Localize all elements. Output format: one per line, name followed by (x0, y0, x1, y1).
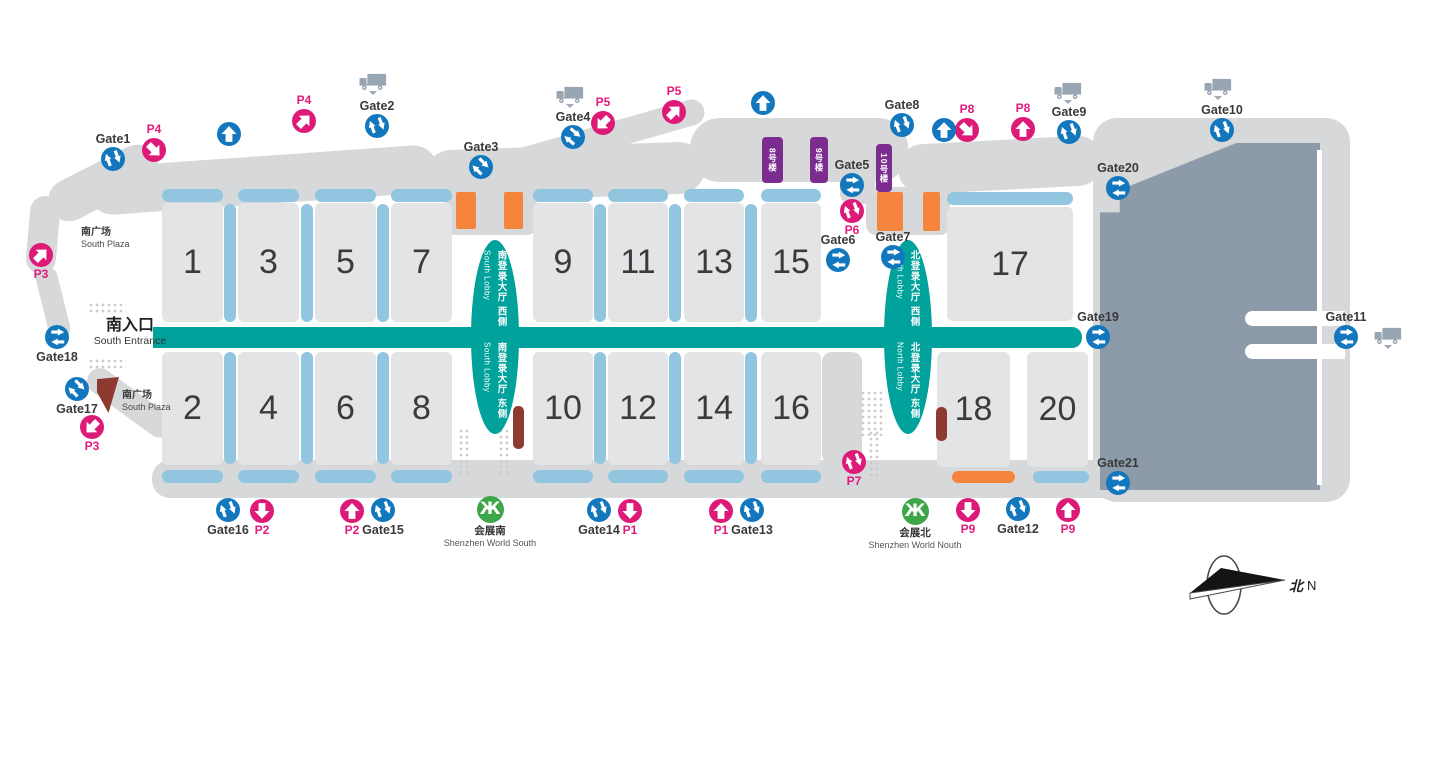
hall-number: 15 (761, 203, 821, 322)
gate-icon (1210, 118, 1234, 142)
truck-parking-strip (391, 470, 452, 483)
parking-icon (340, 499, 364, 523)
gate-label: Gate18 (19, 350, 95, 364)
metro-station-icon: Ж (477, 496, 504, 523)
compass-rose (1185, 548, 1305, 624)
hall-number: 4 (238, 352, 299, 465)
south-plaza-label: 南广场South Plaza (122, 390, 171, 413)
gate-icon (216, 498, 240, 522)
gate-label: Gate10 (1184, 103, 1260, 117)
truck-parking-strip (238, 470, 299, 483)
metro-station-label: 会展南Shenzhen World South (410, 525, 570, 549)
gate-icon (740, 498, 764, 522)
parking-label: P1 (701, 524, 741, 537)
gate-label: Gate3 (443, 140, 519, 154)
hall-3: 3 (238, 203, 299, 322)
truck-parking-strip (315, 470, 376, 483)
gate-label: Gate19 (1060, 310, 1136, 324)
gate-icon (826, 248, 850, 272)
gate-icon (469, 155, 493, 179)
parking-label: P6 (832, 224, 872, 237)
gate-label: Gate11 (1308, 310, 1384, 324)
gate-label: Gate17 (39, 402, 115, 416)
gate-icon (371, 498, 395, 522)
metro-station-icon: Ж (902, 498, 929, 525)
hall-17: 17 (947, 207, 1073, 321)
truck-parking-strip (1033, 471, 1089, 483)
hall-number: 16 (761, 352, 821, 465)
truck-parking-strip (947, 192, 1073, 205)
plaza-label-en: South Plaza (81, 239, 130, 250)
hall-9: 9 (533, 203, 593, 322)
lobby-label-cn: 南登录大厅 东侧 (494, 342, 508, 426)
truck-parking-strip (533, 470, 593, 483)
building-label: 8号楼 (762, 137, 783, 183)
hall-number: 5 (315, 203, 376, 322)
lobby-label-cn: 北登录大厅 东侧 (907, 342, 921, 426)
truck-entrance-icon (358, 72, 388, 96)
truck-parking-strip (533, 189, 593, 202)
hall-12: 12 (608, 352, 668, 465)
compass-label-cn: 北 (1289, 576, 1303, 596)
hall-number: 13 (684, 203, 744, 322)
truck-parking-strip (162, 189, 223, 202)
metro-glyph: Ж (905, 501, 926, 521)
lobby-label: South Lobby南登录大厅 西侧 (471, 250, 519, 334)
truck-entrance-icon (1373, 326, 1403, 350)
hall-number: 6 (315, 352, 376, 465)
parking-icon (250, 499, 274, 523)
truck-entrance-icon (1203, 77, 1233, 101)
dotted-pavement (868, 430, 880, 478)
truck-parking-strip (761, 470, 821, 483)
hall-number: 7 (391, 203, 452, 322)
parking-label: P2 (242, 524, 282, 537)
hall-number: 18 (937, 352, 1010, 467)
hall-number: 2 (162, 352, 223, 465)
truck-parking-strip (224, 204, 236, 322)
parking-icon (1056, 498, 1080, 522)
gate-icon (1006, 497, 1030, 521)
lobby-label: South Lobby南登录大厅 东侧 (471, 342, 519, 426)
truck-parking-strip (608, 189, 668, 202)
parking-label: P8 (1003, 102, 1043, 115)
parking-label: P7 (834, 475, 874, 488)
hall-6: 6 (315, 352, 376, 465)
lobby-label-en: South Lobby (483, 250, 492, 334)
hall-number: 20 (1027, 352, 1088, 467)
truck-parking-strip (684, 189, 744, 202)
road-segment (700, 145, 715, 178)
parking-icon (842, 450, 866, 474)
parking-label: P2 (332, 524, 372, 537)
parking-label: P4 (284, 94, 324, 107)
gate-label: Gate8 (864, 98, 940, 112)
hall-number: 14 (684, 352, 744, 465)
gate-icon (890, 113, 914, 137)
truck-parking-strip (301, 352, 313, 464)
parking-icon (80, 415, 104, 439)
truck-parking-strip (377, 352, 389, 464)
lobby-oval: South Lobby南登录大厅 西侧South Lobby南登录大厅 东侧 (471, 240, 519, 434)
south-entrance-cn: 南入口 (70, 317, 190, 335)
hall-4: 4 (238, 352, 299, 465)
metro-label-en: Shenzhen World South (410, 538, 570, 549)
truck-parking-strip (391, 189, 452, 202)
parking-label: P3 (21, 268, 61, 281)
parking-icon (956, 498, 980, 522)
map-canvas: 135791113151724681012141618208号楼9号楼10号楼S… (0, 0, 1430, 600)
gate-icon (840, 173, 864, 197)
truck-parking-strip (684, 470, 744, 483)
gate-icon (1086, 325, 1110, 349)
road-segment (822, 352, 862, 464)
truck-parking-strip (669, 352, 681, 464)
metro-label-cn: 会展南 (410, 525, 570, 538)
gate-label: Gate20 (1080, 161, 1156, 175)
hall-5: 5 (315, 203, 376, 322)
metro-label-cn: 会展北 (835, 527, 995, 540)
parking-icon (1011, 117, 1035, 141)
parking-icon (709, 499, 733, 523)
lobby-label-cn: 南登录大厅 西侧 (494, 250, 508, 334)
south-entrance-label: 南入口South Entrance (70, 317, 190, 347)
truck-parking-strip (608, 470, 668, 483)
truck-entrance-icon (1053, 81, 1083, 105)
truck-entrance-icon (555, 85, 585, 109)
central-concourse (153, 327, 1082, 348)
south-plaza-label: 南广场South Plaza (81, 227, 130, 250)
parking-icon (142, 138, 166, 162)
parking-exit-icon (751, 91, 775, 115)
building-block: 8号楼 (762, 137, 783, 183)
lobby-label-en: North Lobby (896, 342, 905, 426)
truck-parking-strip (301, 204, 313, 322)
gate-icon (45, 325, 69, 349)
hall-number: 9 (533, 203, 593, 322)
parking-icon (292, 109, 316, 133)
shenzhen-world-parking-map: 135791113151724681012141618208号楼9号楼10号楼S… (0, 0, 1430, 782)
gate-icon (1106, 176, 1130, 200)
parking-icon (955, 118, 979, 142)
gate-icon (365, 114, 389, 138)
lobby-oval: North Lobby北登录大厅 西侧North Lobby北登录大厅 东侧 (884, 240, 932, 434)
gate-icon (101, 147, 125, 171)
truck-parking-strip (669, 204, 681, 322)
gate-icon (881, 245, 905, 269)
parking-label: P5 (583, 96, 623, 109)
metro-label-en: Shenzhen World Nouth (835, 540, 995, 551)
hall-1: 1 (162, 203, 223, 322)
taxi-zone-block (936, 407, 947, 441)
hall-14: 14 (684, 352, 744, 465)
truck-parking-strip (594, 352, 606, 464)
hall-number: 3 (238, 203, 299, 322)
gate-label: Gate5 (814, 158, 890, 172)
parking-label: P3 (72, 440, 112, 453)
vip-parking-block (877, 192, 903, 231)
yard-access-slot (1245, 344, 1345, 359)
road-segment (719, 145, 727, 178)
truck-parking-strip (594, 204, 606, 322)
parking-label: P9 (1048, 523, 1088, 536)
south-entrance-en: South Entrance (70, 335, 190, 347)
hall-number: 12 (608, 352, 668, 465)
parking-icon (618, 499, 642, 523)
gate-icon (561, 125, 585, 149)
hall-number: 11 (608, 203, 668, 322)
hall-7: 7 (391, 203, 452, 322)
hall-15: 15 (761, 203, 821, 322)
compass-label-en: N (1307, 578, 1316, 593)
parking-label: P5 (654, 85, 694, 98)
lobby-label-cn: 北登录大厅 西侧 (907, 250, 921, 334)
gate-icon (1106, 471, 1130, 495)
legend: 地面 车辆出口 Parking Exit 地面 车辆出入口 Parking En… (0, 620, 1430, 782)
parking-exit-icon (217, 122, 241, 146)
lobby-label: North Lobby北登录大厅 东侧 (884, 342, 932, 426)
truck-parking-strip (761, 189, 821, 202)
vip-parking-block (504, 192, 523, 229)
gate-icon (1334, 325, 1358, 349)
dotted-pavement (498, 428, 510, 476)
plaza-label-en: South Plaza (122, 402, 171, 413)
truck-parking-strip (745, 204, 757, 322)
gate-icon (65, 377, 89, 401)
metro-glyph: Ж (480, 499, 501, 519)
parking-label: P1 (610, 524, 650, 537)
hall-10: 10 (533, 352, 593, 465)
hall-11: 11 (608, 203, 668, 322)
metro-station-label: 会展北Shenzhen World Nouth (835, 527, 995, 551)
dotted-pavement (88, 302, 126, 315)
dotted-pavement (458, 428, 470, 476)
hall-13: 13 (684, 203, 744, 322)
truck-parking-strip (315, 189, 376, 202)
compass: 北 N (1185, 548, 1385, 628)
hall-2: 2 (162, 352, 223, 465)
gate-icon (587, 498, 611, 522)
vip-parking-block (923, 192, 940, 231)
hall-20: 20 (1027, 352, 1088, 467)
hall-16: 16 (761, 352, 821, 465)
plaza-label-cn: 南广场 (81, 227, 130, 239)
lobby-label-en: South Lobby (483, 342, 492, 426)
parking-label: P4 (134, 123, 174, 136)
gate-label: Gate2 (339, 99, 415, 113)
truck-parking-strip (238, 189, 299, 202)
parking-icon (662, 100, 686, 124)
plaza-label-cn: 南广场 (122, 390, 171, 402)
hall-number: 1 (162, 203, 223, 322)
gate-icon (1057, 120, 1081, 144)
parking-icon (840, 199, 864, 223)
truck-parking-strip (162, 470, 223, 483)
parking-label: P8 (947, 103, 987, 116)
road-segment (648, 152, 668, 174)
road-segment (731, 145, 746, 178)
gate-label: Gate21 (1080, 456, 1156, 470)
parking-icon (591, 111, 615, 135)
truck-parking-strip (224, 352, 236, 464)
hall-8: 8 (391, 352, 452, 465)
parking-icon (29, 243, 53, 267)
hall-number: 8 (391, 352, 452, 465)
truck-parking-strip (745, 352, 757, 464)
truck-parking-strip (377, 204, 389, 322)
hall-18: 18 (937, 352, 1010, 467)
vip-parking-block (456, 192, 476, 229)
vip-parking-strip (952, 471, 1015, 483)
hall-number: 10 (533, 352, 593, 465)
hall-number: 17 (947, 207, 1073, 321)
parking-exit-icon (932, 118, 956, 142)
